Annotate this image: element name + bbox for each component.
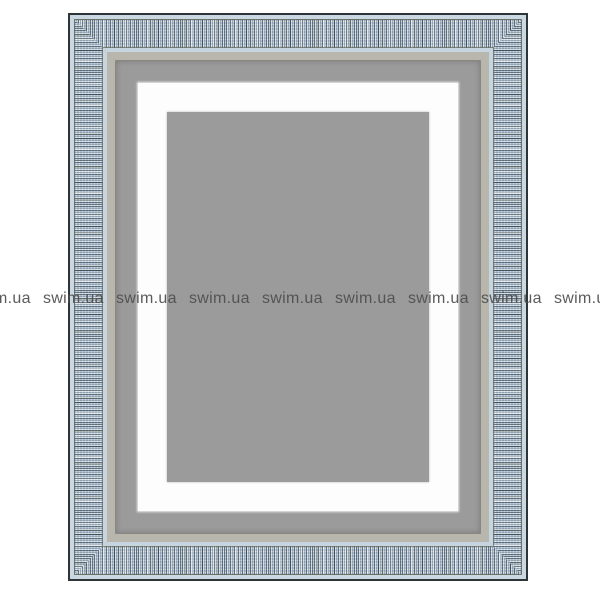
watermark-text: swim.ua: [554, 291, 600, 307]
product-photo: swim.uaswim.uaswim.uaswim.uaswim.uaswim.…: [0, 0, 600, 600]
watermark-text: swim.ua: [0, 291, 31, 307]
watermark-text: swim.ua: [335, 291, 396, 307]
watermark-row: swim.uaswim.uaswim.uaswim.uaswim.uaswim.…: [0, 0, 600, 600]
watermark-text: swim.ua: [189, 291, 250, 307]
watermark-text: swim.ua: [481, 291, 542, 307]
watermark-text: swim.ua: [262, 291, 323, 307]
watermark-text: swim.ua: [116, 291, 177, 307]
watermark-text: swim.ua: [43, 291, 104, 307]
watermark-text: swim.ua: [408, 291, 469, 307]
